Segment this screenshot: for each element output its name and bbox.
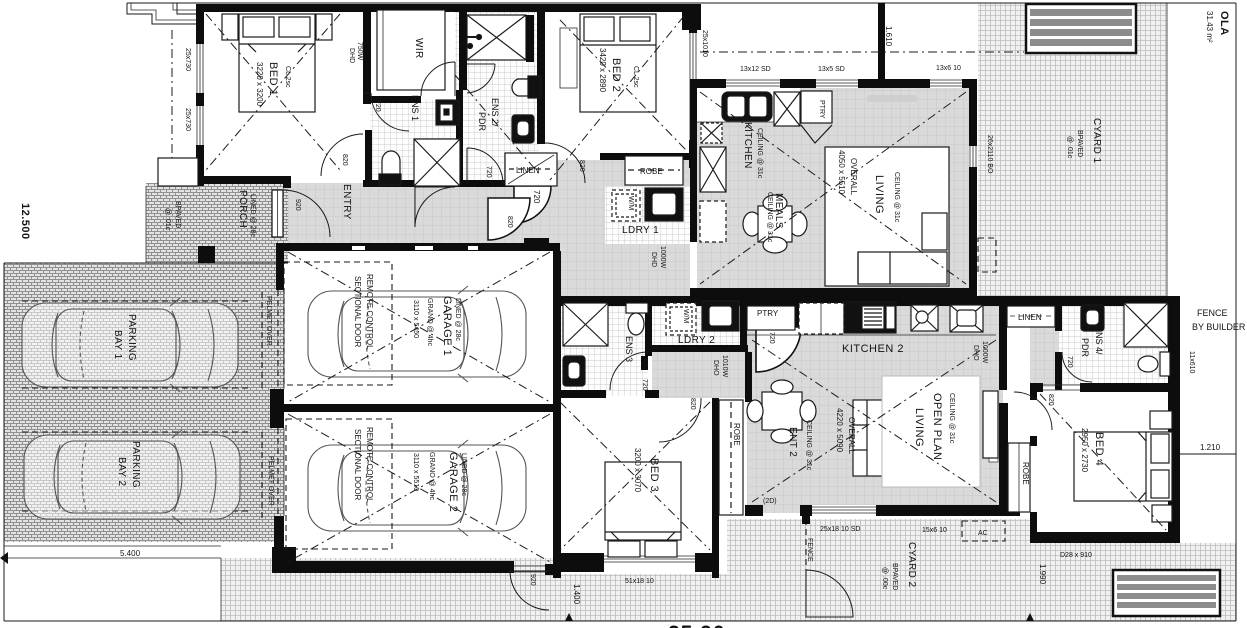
svg-text:LINED @ 28c: LINED @ 28c — [249, 194, 256, 237]
svg-text:820: 820 — [341, 154, 348, 166]
svg-text:720: 720 — [532, 190, 541, 204]
svg-text:51x18 10: 51x18 10 — [625, 578, 654, 585]
svg-text:ENS 1: ENS 1 — [410, 95, 420, 121]
svg-text:750W: 750W — [356, 42, 363, 61]
svg-text:PELMET OVER: PELMET OVER — [265, 296, 272, 346]
svg-text:PDR: PDR — [1080, 338, 1090, 358]
svg-text:OVERALL: OVERALL — [847, 417, 856, 454]
svg-text:1.990: 1.990 — [1038, 564, 1047, 585]
svg-text:720: 720 — [374, 100, 381, 112]
svg-text:25x18 10 SD: 25x18 10 SD — [820, 526, 860, 533]
svg-text:PELMET OVER: PELMET OVER — [267, 456, 274, 506]
svg-text:13x5 SD: 13x5 SD — [818, 66, 845, 73]
svg-text:BPAVED: BPAVED — [1076, 130, 1083, 157]
svg-text:BAY 1: BAY 1 — [112, 330, 123, 359]
svg-text:BPAVED: BPAVED — [174, 201, 181, 228]
svg-text:CEILING @ 31c: CEILING @ 31c — [766, 192, 773, 243]
svg-text:31.43 m²: 31.43 m² — [1205, 11, 1214, 43]
svg-text:3110 x 5510: 3110 x 5510 — [412, 453, 419, 491]
svg-text:@ .00c: @ .00c — [881, 567, 888, 590]
svg-text:REMOTE CONTROL: REMOTE CONTROL — [365, 274, 374, 350]
svg-text:4220 x 5090: 4220 x 5090 — [835, 408, 844, 453]
svg-text:ENS 2/: ENS 2/ — [490, 98, 500, 127]
svg-text:FENCE: FENCE — [806, 538, 813, 562]
svg-text:OPEN PLAN: OPEN PLAN — [931, 393, 943, 460]
svg-text:920: 920 — [529, 574, 536, 586]
svg-text:ROBE: ROBE — [640, 167, 663, 176]
svg-text:@ .01c: @ .01c — [164, 208, 171, 231]
svg-text:OLA: OLA — [1218, 11, 1230, 36]
svg-text:820: 820 — [578, 160, 585, 172]
svg-text:PTRY: PTRY — [757, 309, 779, 318]
svg-text:CYARD 1: CYARD 1 — [1091, 118, 1102, 163]
svg-text:PARKING: PARKING — [130, 441, 141, 488]
svg-text:ENS 3: ENS 3 — [624, 336, 634, 362]
svg-text:1010W: 1010W — [721, 355, 728, 378]
svg-text:LIVING: LIVING — [873, 175, 885, 214]
svg-text:DHD: DHD — [348, 48, 355, 63]
svg-text:KITCHEN: KITCHEN — [742, 122, 753, 169]
svg-text:13x6 10: 13x6 10 — [936, 65, 961, 72]
svg-text:SECTIONAL DOOR: SECTIONAL DOOR — [353, 276, 362, 347]
svg-text:ROBE: ROBE — [1021, 462, 1030, 485]
svg-text:PDR: PDR — [477, 112, 487, 132]
svg-text:WIR: WIR — [413, 38, 424, 59]
svg-text:AC: AC — [978, 530, 988, 537]
svg-text:15x6 10: 15x6 10 — [922, 527, 947, 534]
svg-text:1.400: 1.400 — [572, 584, 581, 605]
svg-text:LIVING: LIVING — [913, 408, 925, 447]
svg-text:720: 720 — [768, 332, 775, 344]
svg-text:SECTIONAL DOOR: SECTIONAL DOOR — [353, 429, 362, 500]
svg-text:FENCE: FENCE — [1197, 308, 1228, 318]
svg-text:KITCHEN 2: KITCHEN 2 — [842, 343, 904, 355]
svg-text:2950 x 2730: 2950 x 2730 — [1080, 428, 1089, 473]
svg-text:820: 820 — [1047, 394, 1054, 406]
svg-text:LINED @ 28c: LINED @ 28c — [460, 453, 467, 496]
svg-text:25x730: 25x730 — [184, 108, 191, 131]
svg-text:CEILING @ 31c: CEILING @ 31c — [893, 172, 900, 223]
svg-text:3220 x 3200: 3220 x 3200 — [255, 62, 264, 107]
svg-text:ENTRY: ENTRY — [341, 184, 352, 220]
svg-text:1000W: 1000W — [659, 246, 666, 269]
svg-text:LINEN: LINEN — [516, 166, 540, 175]
svg-text:3420 x 2890: 3420 x 2890 — [598, 48, 607, 93]
svg-text:LINEN: LINEN — [1018, 313, 1042, 322]
svg-text:720: 720 — [641, 379, 648, 391]
svg-text:PORCH: PORCH — [237, 190, 248, 228]
svg-text:GRANO @ 4hc: GRANO @ 4hc — [428, 452, 435, 500]
svg-text:CEILING @ 31c: CEILING @ 31c — [756, 128, 763, 179]
svg-text:MEALS: MEALS — [773, 193, 784, 229]
svg-text:820: 820 — [689, 398, 696, 410]
svg-text:GRANO @ 4hc: GRANO @ 4hc — [426, 298, 433, 346]
svg-text:CYARD 2: CYARD 2 — [906, 542, 917, 587]
svg-text:1.210: 1.210 — [1200, 443, 1221, 452]
svg-text:DHO: DHO — [972, 345, 979, 361]
svg-text:12.500: 12.500 — [19, 203, 31, 240]
svg-text:3200 x 3070: 3200 x 3070 — [633, 448, 642, 493]
svg-text:(2D): (2D) — [763, 498, 777, 505]
svg-text:LDRY 1: LDRY 1 — [622, 225, 659, 236]
svg-text:25x1010: 25x1010 — [701, 30, 708, 57]
svg-text:GARAGE 2: GARAGE 2 — [447, 452, 459, 512]
svg-text:920: 920 — [294, 199, 301, 211]
svg-text:LINED @ 28c: LINED @ 28c — [454, 298, 461, 341]
svg-text:25.90: 25.90 — [668, 622, 726, 628]
svg-text:PARKING: PARKING — [126, 314, 137, 361]
svg-text:ENT 2: ENT 2 — [787, 427, 798, 457]
svg-text:CEILING @ 31c: CEILING @ 31c — [948, 393, 955, 444]
svg-text:DHO: DHO — [712, 360, 719, 376]
svg-text:REMOTE CONTROL: REMOTE CONTROL — [365, 427, 374, 503]
svg-text:DHD: DHD — [650, 252, 657, 267]
svg-text:820: 820 — [506, 216, 513, 228]
svg-text:@ .01c: @ .01c — [1066, 136, 1073, 159]
svg-text:13x12 SD: 13x12 SD — [740, 66, 771, 73]
svg-text:BED 2: BED 2 — [610, 58, 622, 92]
svg-text:CL 2sc: CL 2sc — [284, 66, 291, 88]
svg-text:720: 720 — [1066, 356, 1073, 368]
svg-text:5.400: 5.400 — [120, 549, 141, 558]
svg-text:LDRY 2: LDRY 2 — [678, 335, 715, 346]
svg-text:ENS 4/: ENS 4/ — [1094, 326, 1104, 355]
svg-text:BED 4: BED 4 — [1093, 432, 1105, 466]
svg-text:GARAGE 1: GARAGE 1 — [441, 296, 453, 356]
svg-text:CL 2sc: CL 2sc — [632, 66, 639, 88]
svg-text:BY BUILDER: BY BUILDER — [1192, 322, 1246, 332]
svg-text:1000W: 1000W — [981, 341, 988, 364]
svg-text:720: 720 — [485, 166, 492, 178]
svg-text:CEILING @ 31c: CEILING @ 31c — [805, 420, 812, 471]
svg-text:BED 3: BED 3 — [648, 458, 660, 492]
svg-text:1.610: 1.610 — [884, 26, 893, 47]
svg-text:W/M: W/M — [627, 196, 634, 211]
svg-text:PTRY: PTRY — [818, 100, 825, 119]
svg-text:OVERALL: OVERALL — [849, 158, 858, 195]
svg-text:26x2110 BO: 26x2110 BO — [986, 135, 993, 174]
svg-text:3110 x 5450: 3110 x 5450 — [412, 300, 419, 338]
svg-text:4050 x 5510: 4050 x 5510 — [837, 150, 846, 195]
svg-text:ROBE: ROBE — [732, 423, 741, 446]
svg-text:W/M: W/M — [682, 309, 689, 324]
svg-text:25x730: 25x730 — [184, 48, 191, 71]
svg-text:D28 x 910: D28 x 910 — [1060, 552, 1092, 559]
svg-text:BPAVED: BPAVED — [891, 563, 898, 590]
svg-text:11x610: 11x610 — [1188, 351, 1195, 374]
svg-text:BED 1: BED 1 — [267, 62, 279, 96]
svg-text:BAY 2: BAY 2 — [116, 457, 127, 486]
